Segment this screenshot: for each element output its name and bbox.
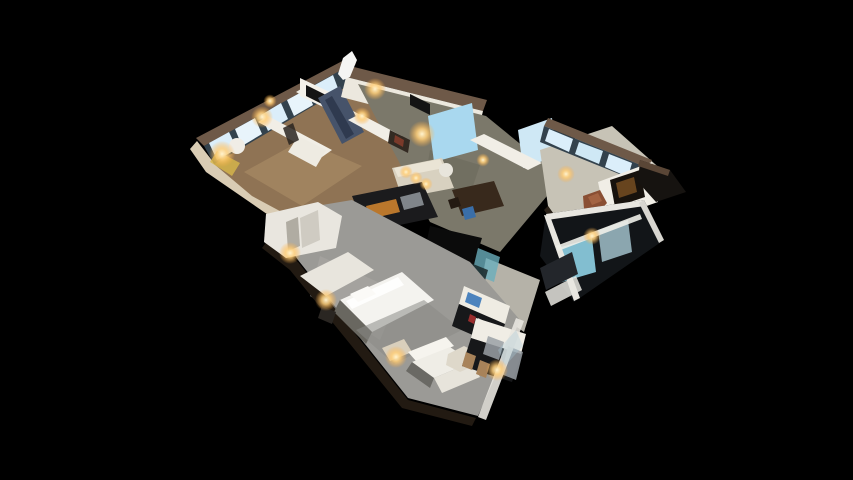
lamp-glow-bedroom-wall xyxy=(251,106,273,128)
pendant-glow-living xyxy=(409,121,435,147)
ceiling-light-1 xyxy=(263,94,276,107)
lamp-glow-nook xyxy=(209,141,235,167)
window-glint xyxy=(476,153,489,166)
lamp-glow-kitchenette xyxy=(486,359,508,381)
lamp-glow-side-table xyxy=(385,346,407,368)
lamp-glow-hall xyxy=(364,78,386,100)
sconce-glow-art xyxy=(353,107,371,125)
round-pouf xyxy=(439,163,453,177)
screenshot-root xyxy=(0,0,853,480)
dollhouse-3d-viewport[interactable] xyxy=(0,0,853,480)
spot-light-3 xyxy=(419,177,432,190)
lamp-glow-bedside xyxy=(315,289,337,311)
lamp-glow-closet xyxy=(279,242,301,264)
lamp-glow-den xyxy=(557,165,575,183)
lamp-glow-balcony xyxy=(583,227,601,245)
